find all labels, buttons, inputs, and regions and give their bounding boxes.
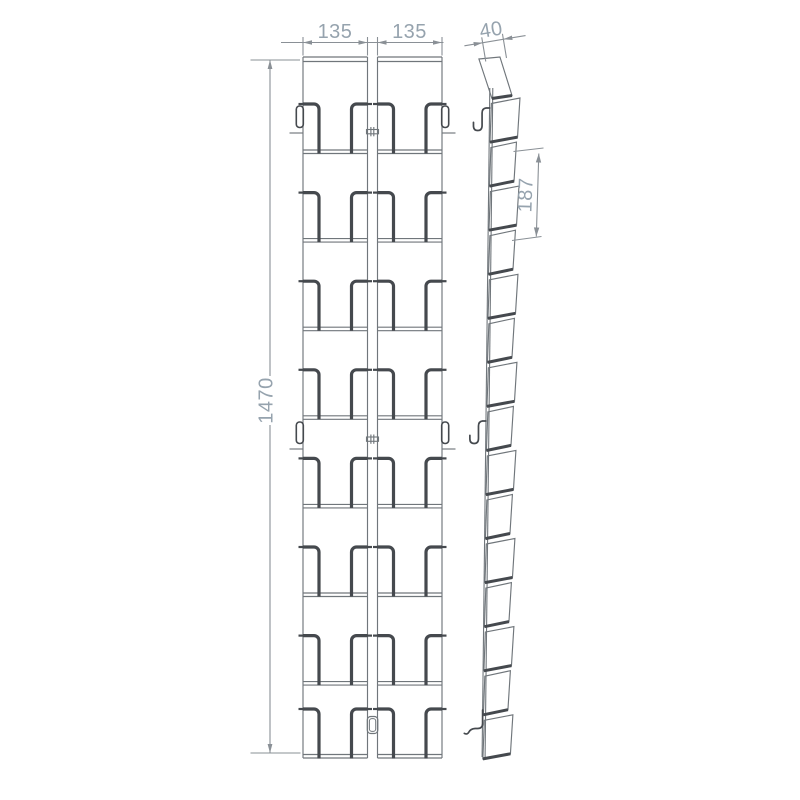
side-pocket-bottom-edge [484,666,512,671]
extension-line [514,148,544,152]
pocket-wire [303,193,319,243]
pocket-wire [303,281,319,331]
side-pocket-panel [486,406,513,450]
side-wall-hook [473,108,489,131]
side-pocket-panel [484,627,514,671]
dimension-pocket-pitch: 187 [512,148,544,241]
pocket-wire [352,709,368,759]
side-pocket-bottom-edge [488,269,513,274]
column-connector [367,437,379,441]
side-pocket-panel [485,495,512,539]
side-pocket-bottom-edge [490,137,518,142]
side-pocket-bottom-edge [483,710,508,715]
pocket-wire [426,370,442,420]
side-pocket-bottom-edge [492,96,512,99]
pocket-wire [378,281,394,331]
dimension-total-height: 1470 [251,60,301,753]
side-pocket-panel [490,98,520,142]
pocket-wire [378,370,394,420]
wall-hook [442,422,449,444]
bottom-clip-inner [369,719,375,732]
arrowhead [268,60,273,69]
pocket-wire [352,547,368,597]
side-pocket-bottom-edge [485,578,513,583]
arrowhead [378,40,387,45]
side-pocket-panel [483,715,513,759]
pocket-wire [352,281,368,331]
side-pocket-bottom-edge [489,181,514,186]
pocket-wire [426,547,442,597]
side-pocket-panel [488,230,515,274]
side-pocket-panel [485,539,515,583]
wall-hook [296,422,303,444]
side-pocket-bottom-edge [489,225,517,230]
technical-drawing: 135 135 40 1470 187 [0,0,800,800]
side-pocket-panel [486,450,516,494]
drawing-canvas: 135 135 40 1470 187 [0,0,800,800]
pocket-wire [426,636,442,686]
wall-hook [296,106,303,128]
side-pocket-panel [487,362,517,406]
side-pocket-panel [488,274,518,318]
extension-line [512,237,542,241]
side-bottom-hook [464,710,482,734]
side-pocket-bottom-edge [486,445,511,450]
pocket-wire [303,104,319,154]
arrowhead [303,40,312,45]
wall-hook [442,106,449,128]
pocket-wire [303,709,319,759]
dim-label-width-right: 135 [392,21,427,43]
side-pocket-bottom-edge [483,754,511,759]
side-pocket-bottom-edge [486,489,514,494]
arrowhead [534,227,539,236]
pocket-wire [352,458,368,508]
pocket-wire [426,104,442,154]
pocket-wire [426,709,442,759]
arrowhead [536,154,541,163]
pocket-wire [352,370,368,420]
pocket-wire [378,547,394,597]
side-pocket-bottom-edge [487,401,515,406]
side-pocket-panel [489,142,516,186]
arrowhead [433,40,442,45]
pocket-wire [378,458,394,508]
dimension-column-widths: 135 135 [281,21,444,56]
side-pocket-panel-top [479,57,512,99]
pocket-wire [378,193,394,243]
column-connector [367,130,379,134]
side-pocket-panel [484,583,511,627]
pocket-wire [303,636,319,686]
dim-label-width-left: 135 [318,21,353,43]
dim-label-height: 1470 [256,377,278,424]
side-view-profile [464,57,520,759]
pocket-wire [426,458,442,508]
side-pocket-bottom-edge [488,313,516,318]
arrowhead [503,36,513,42]
pocket-wire [426,281,442,331]
pocket-wire [352,636,368,686]
side-pocket-panel [483,671,510,715]
front-column [299,57,373,759]
side-pocket-bottom-edge [487,357,512,362]
pocket-wire [303,370,319,420]
pocket-wire [352,104,368,154]
pocket-wire [352,193,368,243]
side-pocket-bottom-edge [485,534,510,539]
side-pocket-panel [487,318,514,362]
side-wall-hook [470,421,486,444]
dim-label-depth: 40 [478,17,505,43]
arrowhead [268,744,273,753]
pocket-wire [378,636,394,686]
pocket-wire [426,193,442,243]
arrowhead [359,40,368,45]
front-column [373,57,447,759]
pocket-wire [303,547,319,597]
pocket-wire [378,709,394,759]
pocket-wire [303,458,319,508]
dim-label-pitch: 187 [514,177,537,213]
pocket-wire [378,104,394,154]
side-pocket-bottom-edge [484,622,509,627]
front-view-two-columns [290,57,456,759]
